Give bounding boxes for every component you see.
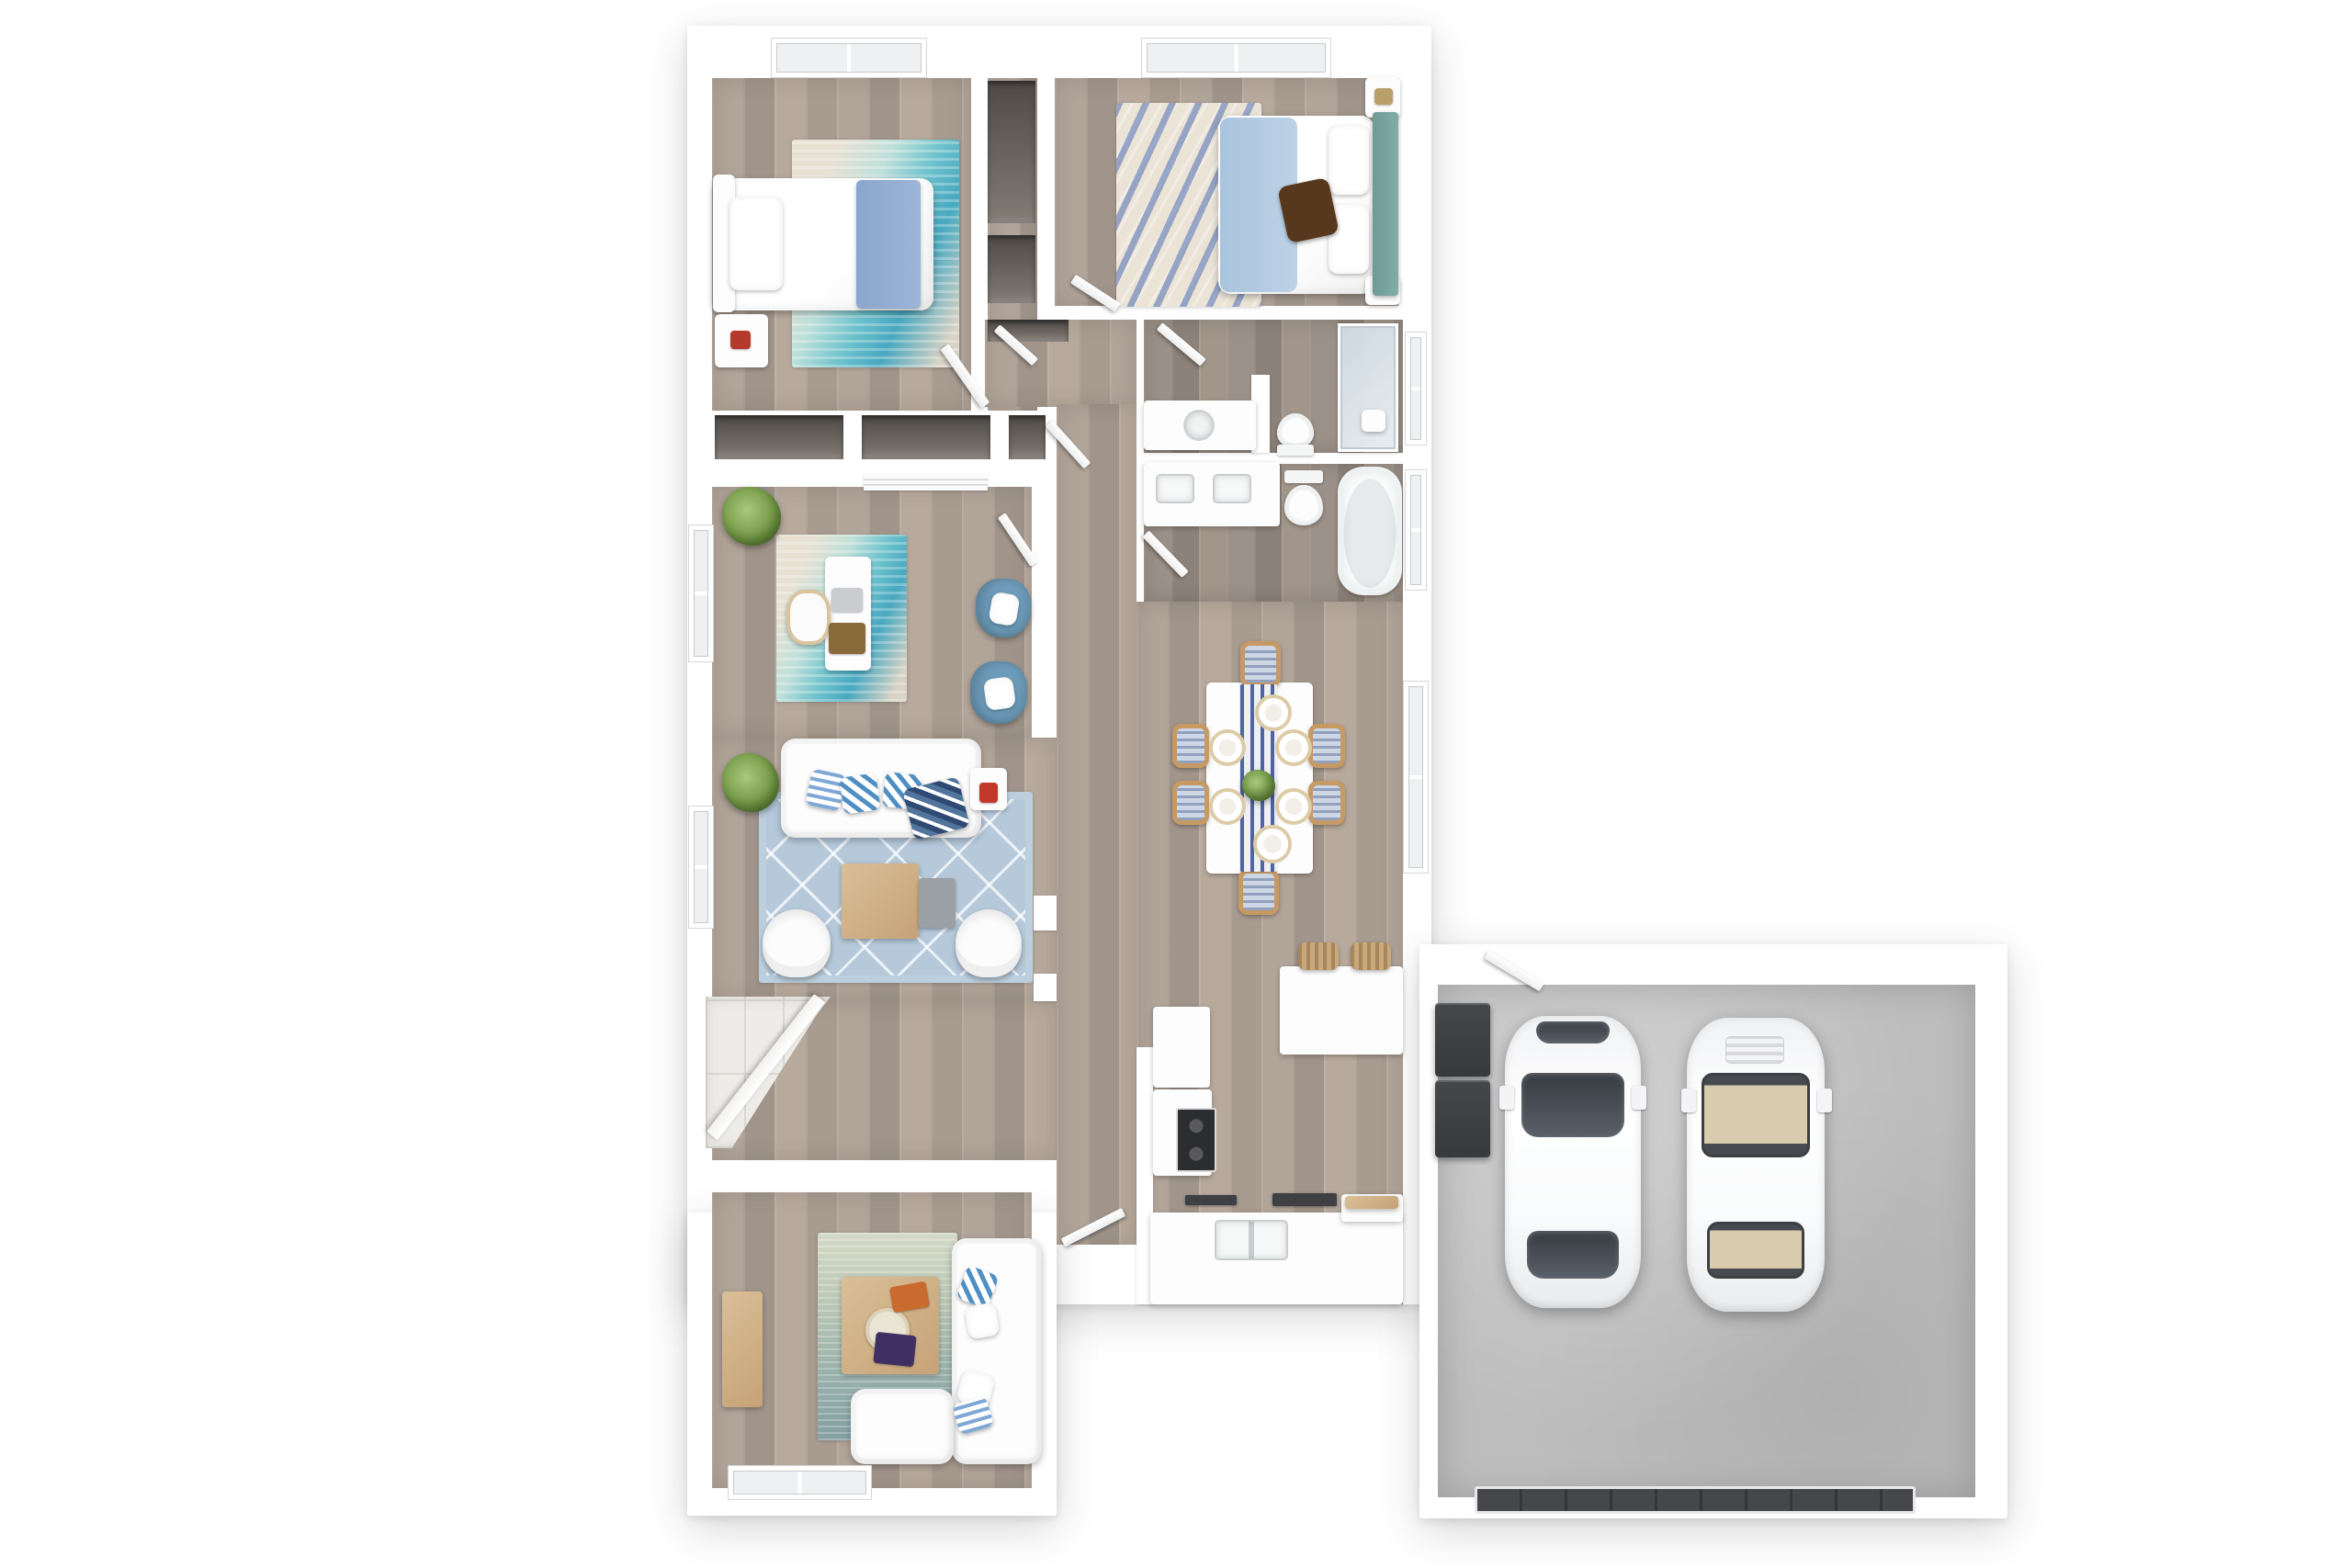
car-right-hood-vent bbox=[1725, 1036, 1784, 1064]
car-right-mirror-l bbox=[1681, 1089, 1696, 1112]
plate-right-2 bbox=[1279, 792, 1308, 821]
toilet-ensuite-bowl bbox=[1277, 413, 1314, 448]
kitchen-sink-double bbox=[1215, 1220, 1288, 1260]
desk-decor-lamp bbox=[831, 588, 863, 612]
dining-chair-bottom bbox=[1238, 869, 1279, 915]
kitchen-peninsula bbox=[1280, 966, 1403, 1055]
closet-hall-small bbox=[1009, 415, 1046, 459]
plate-bottom bbox=[1257, 829, 1288, 860]
armchair-office-2-pillow bbox=[983, 676, 1016, 711]
refrigerator bbox=[1153, 1007, 1210, 1088]
dining-chair-right-2 bbox=[1308, 781, 1345, 825]
window-dining bbox=[1404, 682, 1428, 873]
coffee-table-living bbox=[842, 863, 919, 939]
shower-ensuite bbox=[1338, 323, 1398, 452]
plate-left-1 bbox=[1213, 733, 1242, 762]
office-closet-sliding-doors bbox=[864, 474, 988, 491]
shower-shelf bbox=[1362, 410, 1385, 432]
media-console-family bbox=[722, 1292, 763, 1407]
master-pillow-1 bbox=[1329, 125, 1369, 195]
floor-plan-scene bbox=[0, 0, 2352, 1568]
sink-hall-bath-right bbox=[1213, 474, 1251, 503]
car-left-mirror-r bbox=[1632, 1086, 1646, 1110]
nightstand-master-top-decor bbox=[1374, 88, 1393, 105]
dining-chair-top bbox=[1240, 641, 1281, 687]
cutting-boards bbox=[1345, 1196, 1398, 1209]
bar-stool-2 bbox=[1351, 942, 1391, 970]
garage-roller-door bbox=[1475, 1486, 1916, 1514]
sectional-pillow-2 bbox=[964, 1302, 1001, 1339]
washer bbox=[1435, 1003, 1490, 1077]
window-family bbox=[729, 1466, 871, 1499]
dining-centerpiece bbox=[1242, 770, 1275, 801]
desk-decor-book bbox=[829, 623, 865, 654]
dryer bbox=[1435, 1080, 1490, 1157]
coffee-table-book-teal bbox=[873, 1332, 916, 1367]
sink-ensuite bbox=[1183, 410, 1215, 441]
plant-living bbox=[722, 753, 779, 812]
sectional-chaise bbox=[851, 1389, 954, 1464]
dining-chair-right-1 bbox=[1308, 724, 1345, 768]
counter-mat-dark bbox=[1185, 1195, 1237, 1205]
master-headboard bbox=[1373, 112, 1398, 296]
wall-living-pier-lower bbox=[1034, 974, 1057, 1001]
car-left-mirror-l bbox=[1499, 1086, 1514, 1110]
side-table-decor bbox=[979, 783, 998, 803]
car-right-rear-window bbox=[1707, 1222, 1804, 1279]
floor-hall-vertical bbox=[1057, 404, 1136, 1245]
desk-chair bbox=[786, 590, 831, 645]
window-master bbox=[1142, 39, 1330, 77]
window-living bbox=[689, 807, 713, 928]
window-bath-hall bbox=[1406, 470, 1426, 590]
dining-chair-left-2 bbox=[1172, 781, 1209, 825]
closet-corridor-lower bbox=[988, 235, 1035, 303]
closet-bedroom2-left bbox=[715, 415, 843, 459]
wall-living-pier-upper bbox=[1034, 896, 1057, 931]
stove bbox=[1176, 1108, 1216, 1172]
counter-appliance-dark bbox=[1272, 1193, 1337, 1206]
bathtub bbox=[1338, 467, 1402, 595]
toilet-hall-bath-tank bbox=[1284, 470, 1323, 483]
car-left-back-window bbox=[1527, 1231, 1619, 1279]
bed2-pillow bbox=[729, 197, 783, 290]
car-right-mirror-r bbox=[1817, 1089, 1832, 1112]
window-office bbox=[689, 525, 713, 661]
nightstand-bedroom2-decor bbox=[730, 331, 751, 349]
plate-right-1 bbox=[1279, 733, 1308, 762]
dining-chair-left-1 bbox=[1172, 724, 1209, 768]
toilet-ensuite-tank bbox=[1277, 445, 1314, 456]
plate-top bbox=[1259, 698, 1288, 728]
closet-office bbox=[862, 415, 990, 459]
bed2-blanket bbox=[856, 180, 921, 309]
closet-corridor-upper bbox=[988, 81, 1035, 223]
car-left-windshield bbox=[1521, 1073, 1624, 1137]
toilet-hall-bath-bowl bbox=[1284, 485, 1323, 525]
barrel-chair-left bbox=[763, 909, 831, 977]
plant-office bbox=[722, 487, 781, 546]
bar-stool-1 bbox=[1298, 942, 1339, 970]
ottoman-tray bbox=[919, 878, 955, 928]
window-bath-ensuite bbox=[1406, 333, 1426, 445]
sofa-pillow-2 bbox=[839, 773, 880, 814]
car-right-windshield bbox=[1702, 1073, 1810, 1157]
plate-left-2 bbox=[1213, 792, 1242, 821]
car-left-rear-glass bbox=[1536, 1021, 1610, 1043]
window-bedroom2 bbox=[772, 39, 926, 77]
barrel-chair-right bbox=[955, 909, 1022, 977]
sink-hall-bath-left bbox=[1156, 474, 1194, 503]
